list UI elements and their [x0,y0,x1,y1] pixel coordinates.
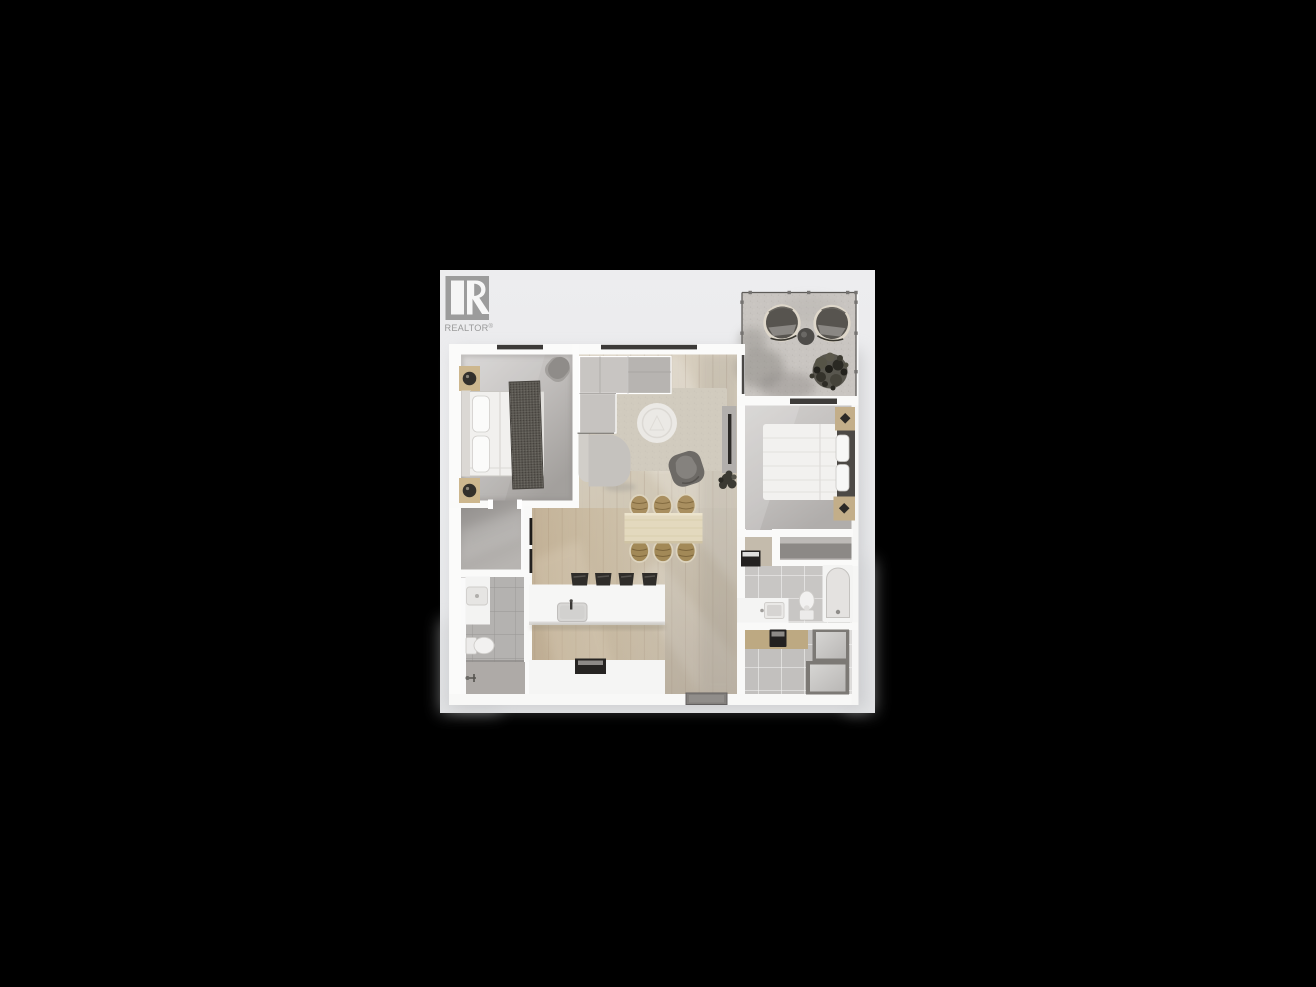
svg-text:REALTOR®: REALTOR® [445,323,494,333]
